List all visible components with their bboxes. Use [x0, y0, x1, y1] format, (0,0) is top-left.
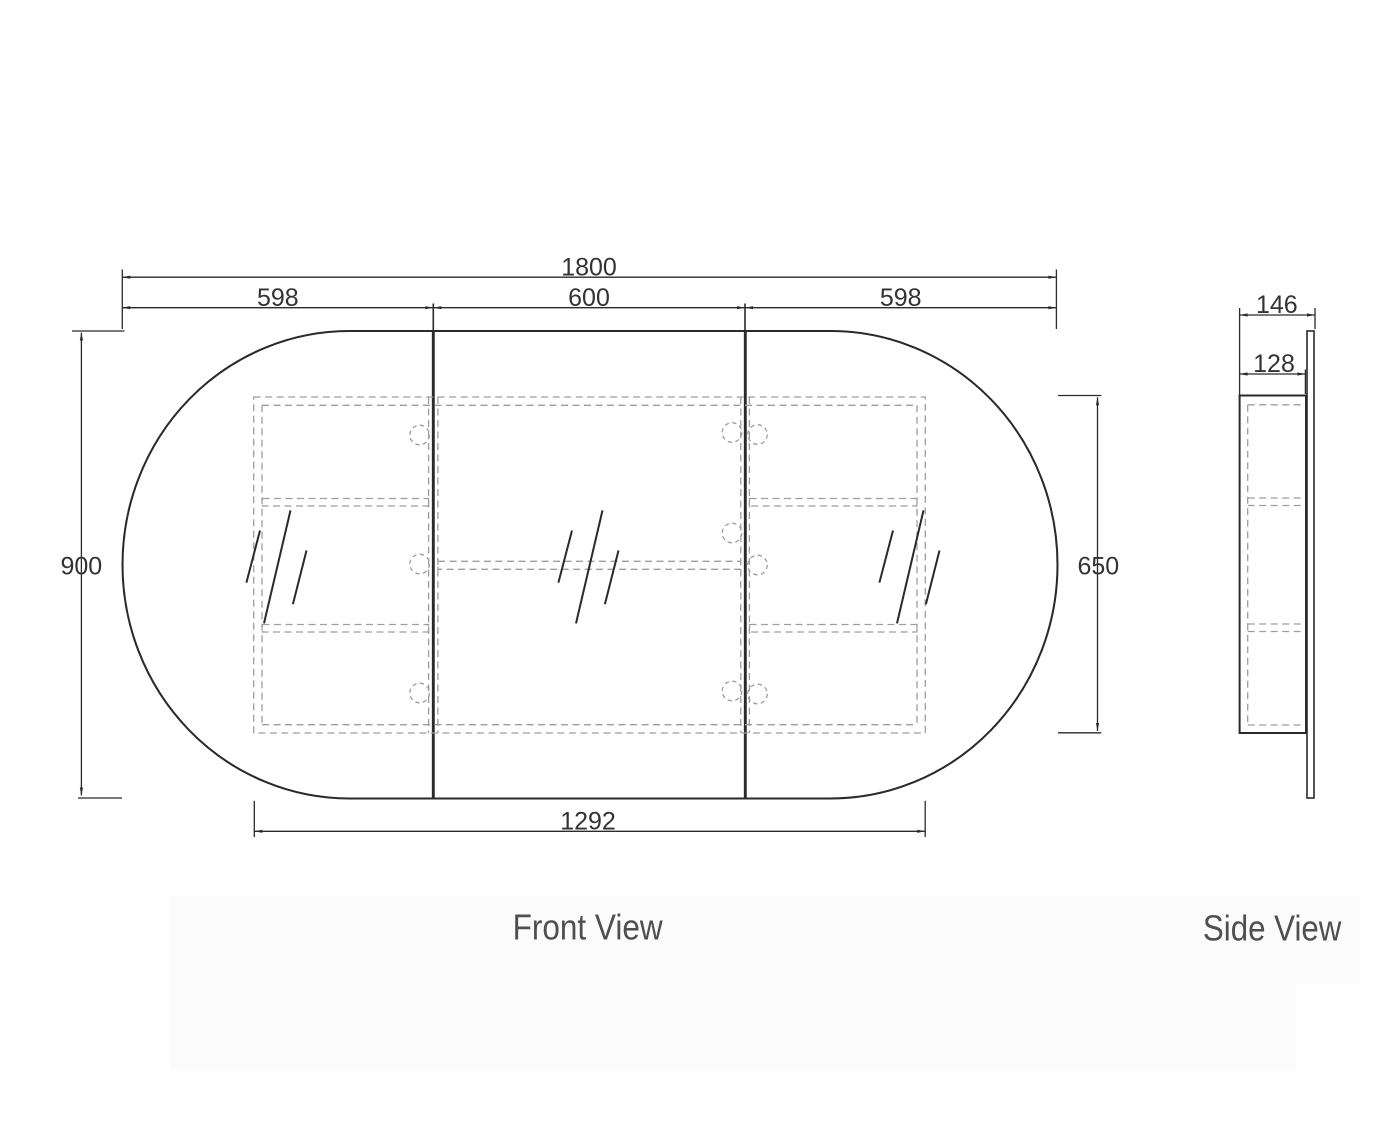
svg-text:Front View: Front View [513, 907, 664, 948]
svg-text:Side View: Side View [1203, 908, 1342, 949]
svg-text:1800: 1800 [561, 254, 617, 282]
svg-text:900: 900 [60, 553, 102, 581]
svg-text:600: 600 [568, 284, 610, 312]
svg-text:598: 598 [257, 284, 299, 312]
svg-text:1292: 1292 [560, 808, 616, 836]
svg-text:146: 146 [1256, 291, 1298, 319]
svg-text:650: 650 [1077, 553, 1119, 581]
svg-text:128: 128 [1253, 350, 1295, 378]
svg-text:598: 598 [880, 284, 922, 312]
